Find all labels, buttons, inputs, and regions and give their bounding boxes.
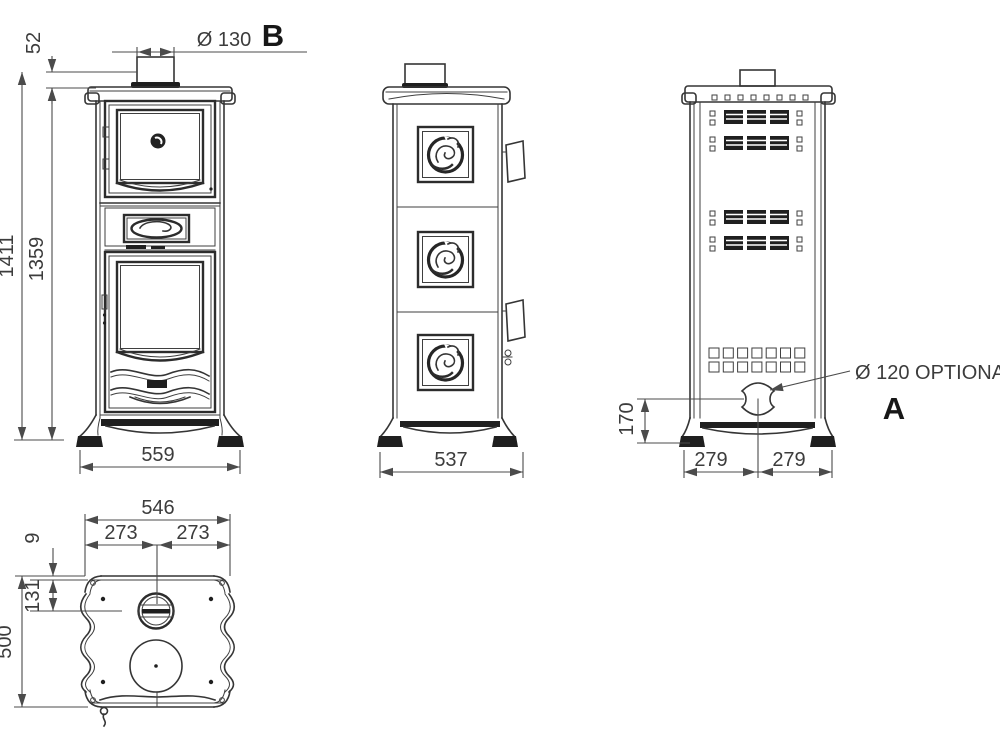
side-medallion-middle (418, 232, 473, 287)
top-dimensions: 546 273 273 9 131 (0, 497, 230, 707)
front-view-label: B (262, 18, 284, 53)
dim-back-half-width-right: 279 (772, 449, 805, 471)
oven-door-knob (151, 134, 166, 149)
side-medallion-bottom (418, 335, 473, 390)
side-medallion-top (418, 127, 473, 182)
side-dimensions: 537 (380, 449, 523, 478)
front-left-foot (76, 436, 103, 447)
stove-dimension-drawing: Ø 130 B 52 1411 1359 55 (0, 0, 1000, 748)
dim-front-collar-height: 52 (23, 32, 45, 54)
back-view: 170 Ø 120 OPTIONAL A 279 279 (616, 70, 1000, 478)
side-flue-pipe (402, 64, 448, 88)
firebox-door-handle (147, 380, 167, 388)
dim-side-depth: 537 (434, 449, 467, 471)
back-view-label: A (883, 391, 905, 426)
side-top-plate (383, 87, 510, 104)
back-flue-stub (740, 70, 775, 86)
front-view: Ø 130 B 52 1411 1359 55 (0, 18, 307, 474)
top-view: 546 273 273 9 131 (0, 497, 234, 726)
side-right-foot (492, 436, 518, 447)
back-dimensions: 170 Ø 120 OPTIONAL A 279 279 (616, 362, 1000, 478)
side-base (377, 418, 518, 447)
front-firebox-door (102, 252, 215, 412)
dim-back-half-width-left: 279 (694, 449, 727, 471)
dim-top-half-width-right: 273 (176, 522, 209, 544)
dim-front-total-height: 1411 (0, 234, 18, 277)
side-door-handles (502, 141, 525, 365)
dim-back-outlet-height: 170 (616, 402, 638, 435)
back-top-plate (682, 86, 835, 104)
dim-front-flue-diameter: Ø 130 (197, 29, 251, 51)
side-body-outline (393, 104, 502, 418)
dim-top-depth: 500 (0, 625, 16, 658)
dim-top-width: 546 (141, 497, 174, 519)
front-right-foot (217, 436, 244, 447)
back-top-vent-holes (712, 95, 808, 100)
dim-top-rear-edge-offset: 9 (22, 532, 44, 543)
front-middle-band (100, 203, 220, 250)
front-flue-pipe (131, 57, 180, 88)
dim-front-width: 559 (141, 444, 174, 466)
dim-top-half-width-left: 273 (104, 522, 137, 544)
technical-drawing-page: Ø 130 B 52 1411 1359 55 (0, 0, 1000, 748)
top-flue-collar (139, 594, 174, 629)
back-left-foot (679, 436, 705, 447)
back-right-foot (810, 436, 836, 447)
back-square-vent-grid (709, 348, 805, 372)
back-vent-rows (710, 110, 802, 251)
dim-front-body-height: 1359 (26, 237, 48, 282)
front-base (76, 415, 244, 447)
front-oven-door (103, 101, 215, 197)
side-view: 537 (377, 64, 525, 478)
side-left-foot (377, 436, 403, 447)
note-back-optional-outlet: Ø 120 OPTIONAL (855, 362, 1000, 384)
back-flue-outlet-opening (742, 383, 774, 415)
dim-top-flue-center-offset: 131 (22, 579, 44, 612)
top-front-bar (100, 693, 215, 726)
